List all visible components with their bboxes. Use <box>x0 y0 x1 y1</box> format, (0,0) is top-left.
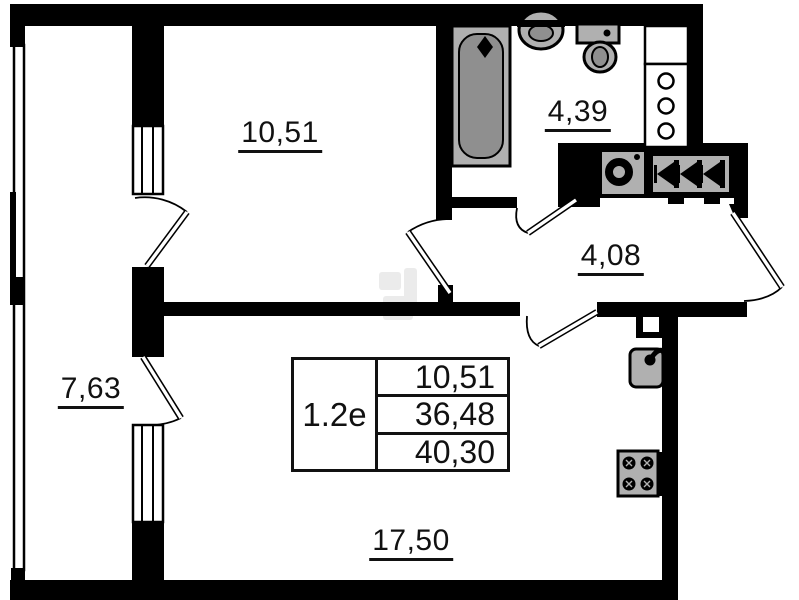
unit-type: 1.2е <box>294 360 378 469</box>
balcony-glazing <box>14 45 24 570</box>
area-label-kitchen-living: 17,50 <box>369 526 453 561</box>
window-kitchen <box>133 425 163 522</box>
floor-plan-drawing <box>0 0 799 600</box>
apartment-info-table: 1.2е 10,51 36,48 40,30 <box>291 357 510 472</box>
area-label-bathroom: 4,39 <box>545 97 611 132</box>
window-room <box>133 126 163 194</box>
washing-machine-icon <box>598 148 648 198</box>
toilet-icon <box>577 24 619 72</box>
utility-shaft-icon <box>645 26 688 147</box>
door-balcony-kitchen <box>143 357 181 425</box>
area-value-row: 36,48 <box>378 397 507 434</box>
area-label-room: 10,51 <box>238 118 322 153</box>
kitchen-sink-icon <box>630 349 664 387</box>
area-label-hallway: 4,08 <box>578 241 644 276</box>
stove-icon <box>618 451 664 496</box>
door-bathroom <box>516 200 576 233</box>
area-values: 10,51 36,48 40,30 <box>378 360 507 469</box>
door-balcony-room <box>135 197 187 266</box>
ventilation-shaft-icon <box>648 150 734 198</box>
bathtub-icon <box>452 26 510 166</box>
floor-plan: 10,51 4,39 4,08 7,63 17,50 1.2е 10,51 36… <box>0 0 799 600</box>
sink-icon <box>517 11 565 49</box>
duct-notch <box>643 317 659 332</box>
door-entrance <box>733 213 782 301</box>
door-kitchen <box>527 312 597 346</box>
area-label-balcony: 7,63 <box>58 374 124 409</box>
area-value-row: 40,30 <box>378 435 507 469</box>
area-value-row: 10,51 <box>378 360 507 397</box>
walls <box>10 4 748 600</box>
